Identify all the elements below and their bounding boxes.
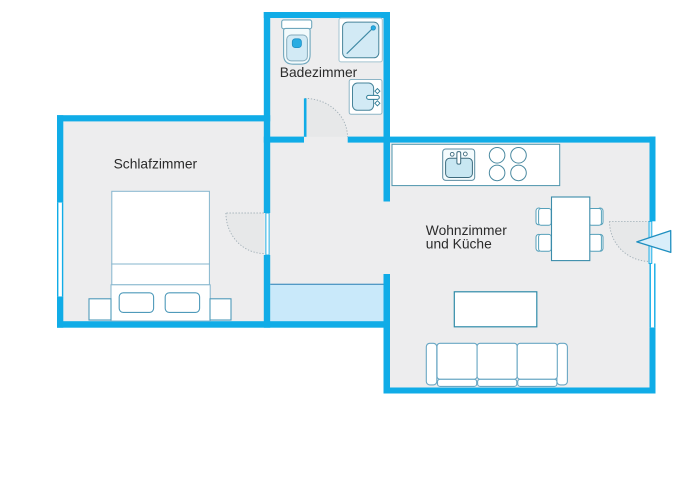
svg-text:Schlafzimmer: Schlafzimmer bbox=[114, 156, 198, 171]
svg-text:und Küche: und Küche bbox=[426, 236, 492, 251]
svg-text:Badezimmer: Badezimmer bbox=[280, 65, 358, 80]
